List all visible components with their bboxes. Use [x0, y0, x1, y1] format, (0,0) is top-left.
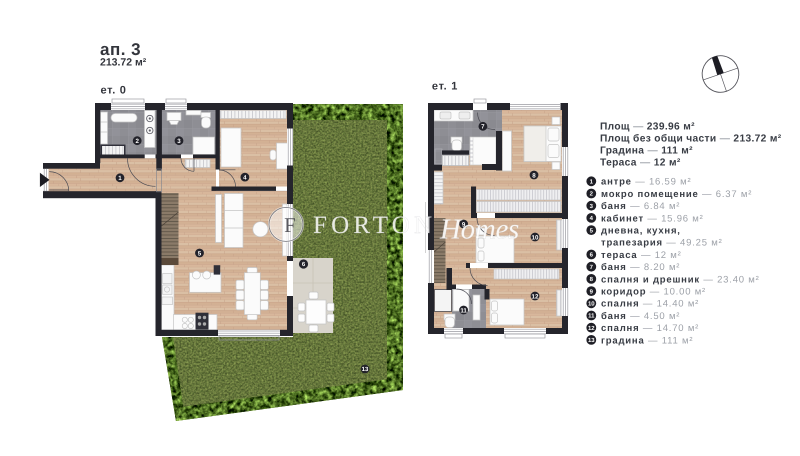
svg-text:13: 13: [588, 337, 595, 344]
svg-text:баня — 8.20 м²: баня — 8.20 м²: [601, 262, 680, 273]
svg-text:ет. 0: ет. 0: [101, 84, 127, 96]
svg-text:1: 1: [118, 175, 122, 182]
svg-text:5: 5: [198, 250, 202, 257]
svg-text:12: 12: [532, 293, 539, 300]
svg-text:10: 10: [588, 301, 595, 308]
svg-text:FORTON: FORTON: [313, 212, 436, 239]
svg-text:коридор — 10.00 м²: коридор — 10.00 м²: [601, 287, 706, 298]
svg-text:спалня — 14.40 м²: спалня — 14.40 м²: [601, 299, 699, 310]
svg-text:11: 11: [460, 307, 467, 314]
svg-text:F: F: [284, 213, 296, 237]
svg-text:Площ без общи части — 213.72 м: Площ без общи части — 213.72 м²: [600, 134, 782, 145]
svg-text:дневна, кухня,: дневна, кухня,: [601, 226, 681, 237]
svg-text:Градина — 111 м²: Градина — 111 м²: [600, 146, 693, 157]
svg-text:тераса — 12 м²: тераса — 12 м²: [601, 250, 682, 261]
svg-text:баня — 4.50 м²: баня — 4.50 м²: [601, 311, 680, 322]
svg-text:213.72 м²: 213.72 м²: [100, 57, 147, 69]
svg-text:11: 11: [588, 313, 595, 320]
svg-text:кабинет — 15.96 м²: кабинет — 15.96 м²: [601, 213, 704, 224]
svg-text:3: 3: [177, 138, 181, 145]
svg-text:спалня — 14.70 м²: спалня — 14.70 м²: [601, 323, 699, 334]
svg-text:мокро помещение — 6.37 м²: мокро помещение — 6.37 м²: [601, 189, 752, 200]
svg-text:градина — 111 м²: градина — 111 м²: [601, 335, 693, 346]
svg-text:трапезария — 49.25 м²: трапезария — 49.25 м²: [601, 238, 723, 249]
svg-text:4: 4: [243, 174, 247, 181]
svg-text:Площ — 239.96 м²: Площ — 239.96 м²: [600, 122, 695, 133]
svg-text:спалня и дрешник — 23.40 м²: спалня и дрешник — 23.40 м²: [601, 274, 760, 285]
svg-text:антре — 16.59 м²: антре — 16.59 м²: [601, 177, 691, 188]
svg-text:7: 7: [481, 124, 485, 131]
svg-text:ет. 1: ет. 1: [432, 81, 458, 93]
svg-text:баня — 6.84 м²: баня — 6.84 м²: [601, 201, 680, 212]
svg-text:2: 2: [135, 138, 139, 145]
svg-text:Homes: Homes: [439, 214, 519, 246]
svg-text:13: 13: [362, 366, 369, 373]
svg-text:12: 12: [588, 325, 595, 332]
svg-text:10: 10: [532, 234, 539, 241]
svg-text:Тераса — 12 м²: Тераса — 12 м²: [600, 158, 681, 169]
svg-text:8: 8: [532, 172, 536, 179]
